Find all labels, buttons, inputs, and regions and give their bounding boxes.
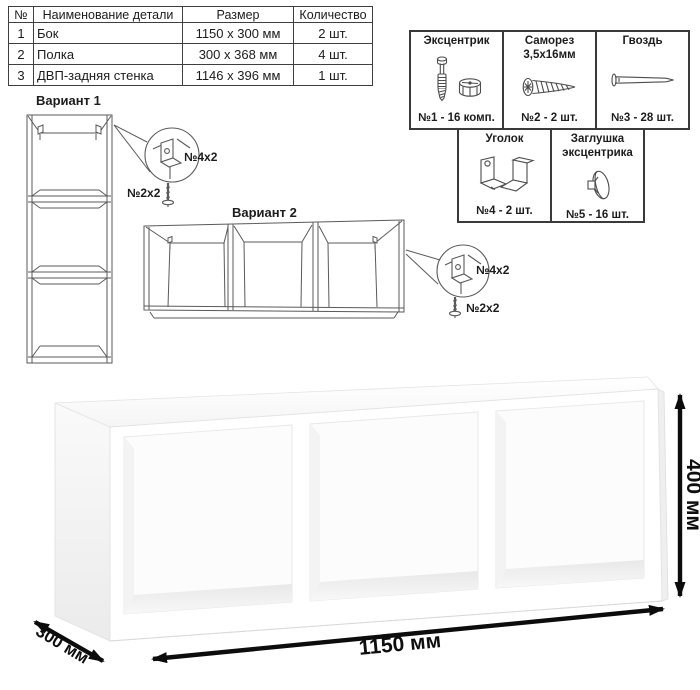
assembly-instruction-sheet: № Наименование детали Размер Количество … (0, 0, 700, 690)
hardware-count: №1 - 16 комп. (418, 112, 495, 124)
part-qty: 4 шт. (294, 44, 373, 65)
hardware-count: №4 - 2 шт. (476, 205, 532, 217)
part-size: 1146 х 396 мм (183, 65, 294, 86)
corner-bracket-icon (473, 147, 537, 205)
hardware-box-row1: Эксцентрик №1 - 16 комп (409, 30, 690, 130)
part-num: 3 (9, 65, 34, 86)
hardware-count: №5 - 16 шт. (566, 209, 629, 221)
part-size: 300 х 368 мм (183, 44, 294, 65)
hardware-cell-eccentric: Эксцентрик №1 - 16 комп (409, 30, 504, 130)
hardware-title: Саморез (525, 35, 574, 49)
hardware-cell-screw: Саморез 3,5х16мм №2 - 2 шт. (502, 30, 597, 130)
col-header-name: Наименование детали (34, 7, 183, 23)
hardware-box-row2: Уголок №4 - 2 шт. Заглушка эксцентрика (457, 128, 645, 223)
bracket-mark-icon (38, 125, 43, 134)
part-size: 1150 х 300 мм (183, 23, 294, 44)
shelf-left-panel (55, 403, 110, 641)
col-header-qty: Количество (294, 7, 373, 23)
hardware-cell-cap: Заглушка эксцентрика №5 - 16 шт. (550, 128, 645, 223)
bracket-mark-icon (373, 237, 377, 244)
variant1-screw-label: №2х2 (127, 186, 160, 200)
height-dimension-label: 400 мм (681, 453, 700, 537)
table-row: 1 Бок 1150 х 300 мм 2 шт. (9, 23, 373, 44)
hardware-title: Гвоздь (622, 35, 662, 49)
compartment-opening (496, 401, 644, 588)
hardware-title: Заглушка (571, 133, 624, 147)
screw-detail-icon (450, 297, 461, 318)
cam-cap-icon (578, 161, 618, 209)
variant2-screw-label: №2х2 (466, 301, 499, 315)
part-num: 2 (9, 44, 34, 65)
variant1-bracket-label: №4х2 (184, 150, 217, 164)
hardware-cell-nail: Гвоздь №3 - 28 шт. (595, 30, 690, 130)
bracket-mark-icon (96, 125, 101, 134)
eccentric-cam-bolt-icon (427, 49, 487, 112)
compartment-opening (310, 412, 478, 601)
part-name: ДВП-задняя стенка (34, 65, 183, 86)
hardware-title: Уголок (485, 133, 523, 147)
hardware-cell-bracket: Уголок №4 - 2 шт. (457, 128, 552, 223)
variant2-title: Вариант 2 (232, 205, 297, 220)
variant2-drawing (144, 220, 440, 318)
part-num: 1 (9, 23, 34, 44)
part-qty: 1 шт. (294, 65, 373, 86)
shelf-3d-render (55, 377, 668, 641)
bracket-mark-icon (168, 237, 172, 244)
hardware-title: Эксцентрик (423, 35, 489, 49)
variant2-bracket-label: №4х2 (476, 263, 509, 277)
hardware-subtitle: эксцентрика (562, 147, 633, 161)
nail-icon (609, 49, 677, 112)
variant1-title: Вариант 1 (36, 93, 101, 108)
variant1-drawing (27, 115, 150, 363)
hardware-count: №2 - 2 шт. (521, 112, 577, 124)
part-name: Бок (34, 23, 183, 44)
part-name: Полка (34, 44, 183, 65)
hardware-count: №3 - 28 шт. (611, 112, 674, 124)
col-header-size: Размер (183, 7, 294, 23)
col-header-num: № (9, 7, 34, 23)
hardware-subtitle: 3,5х16мм (523, 49, 575, 63)
screw-icon (519, 63, 581, 112)
parts-table-header: № Наименование детали Размер Количество (9, 7, 373, 23)
screw-detail-icon (163, 183, 174, 207)
table-row: 2 Полка 300 х 368 мм 4 шт. (9, 44, 373, 65)
part-qty: 2 шт. (294, 23, 373, 44)
parts-table: № Наименование детали Размер Количество … (8, 6, 373, 86)
compartment-opening (124, 425, 292, 614)
table-row: 3 ДВП-задняя стенка 1146 х 396 мм 1 шт. (9, 65, 373, 86)
